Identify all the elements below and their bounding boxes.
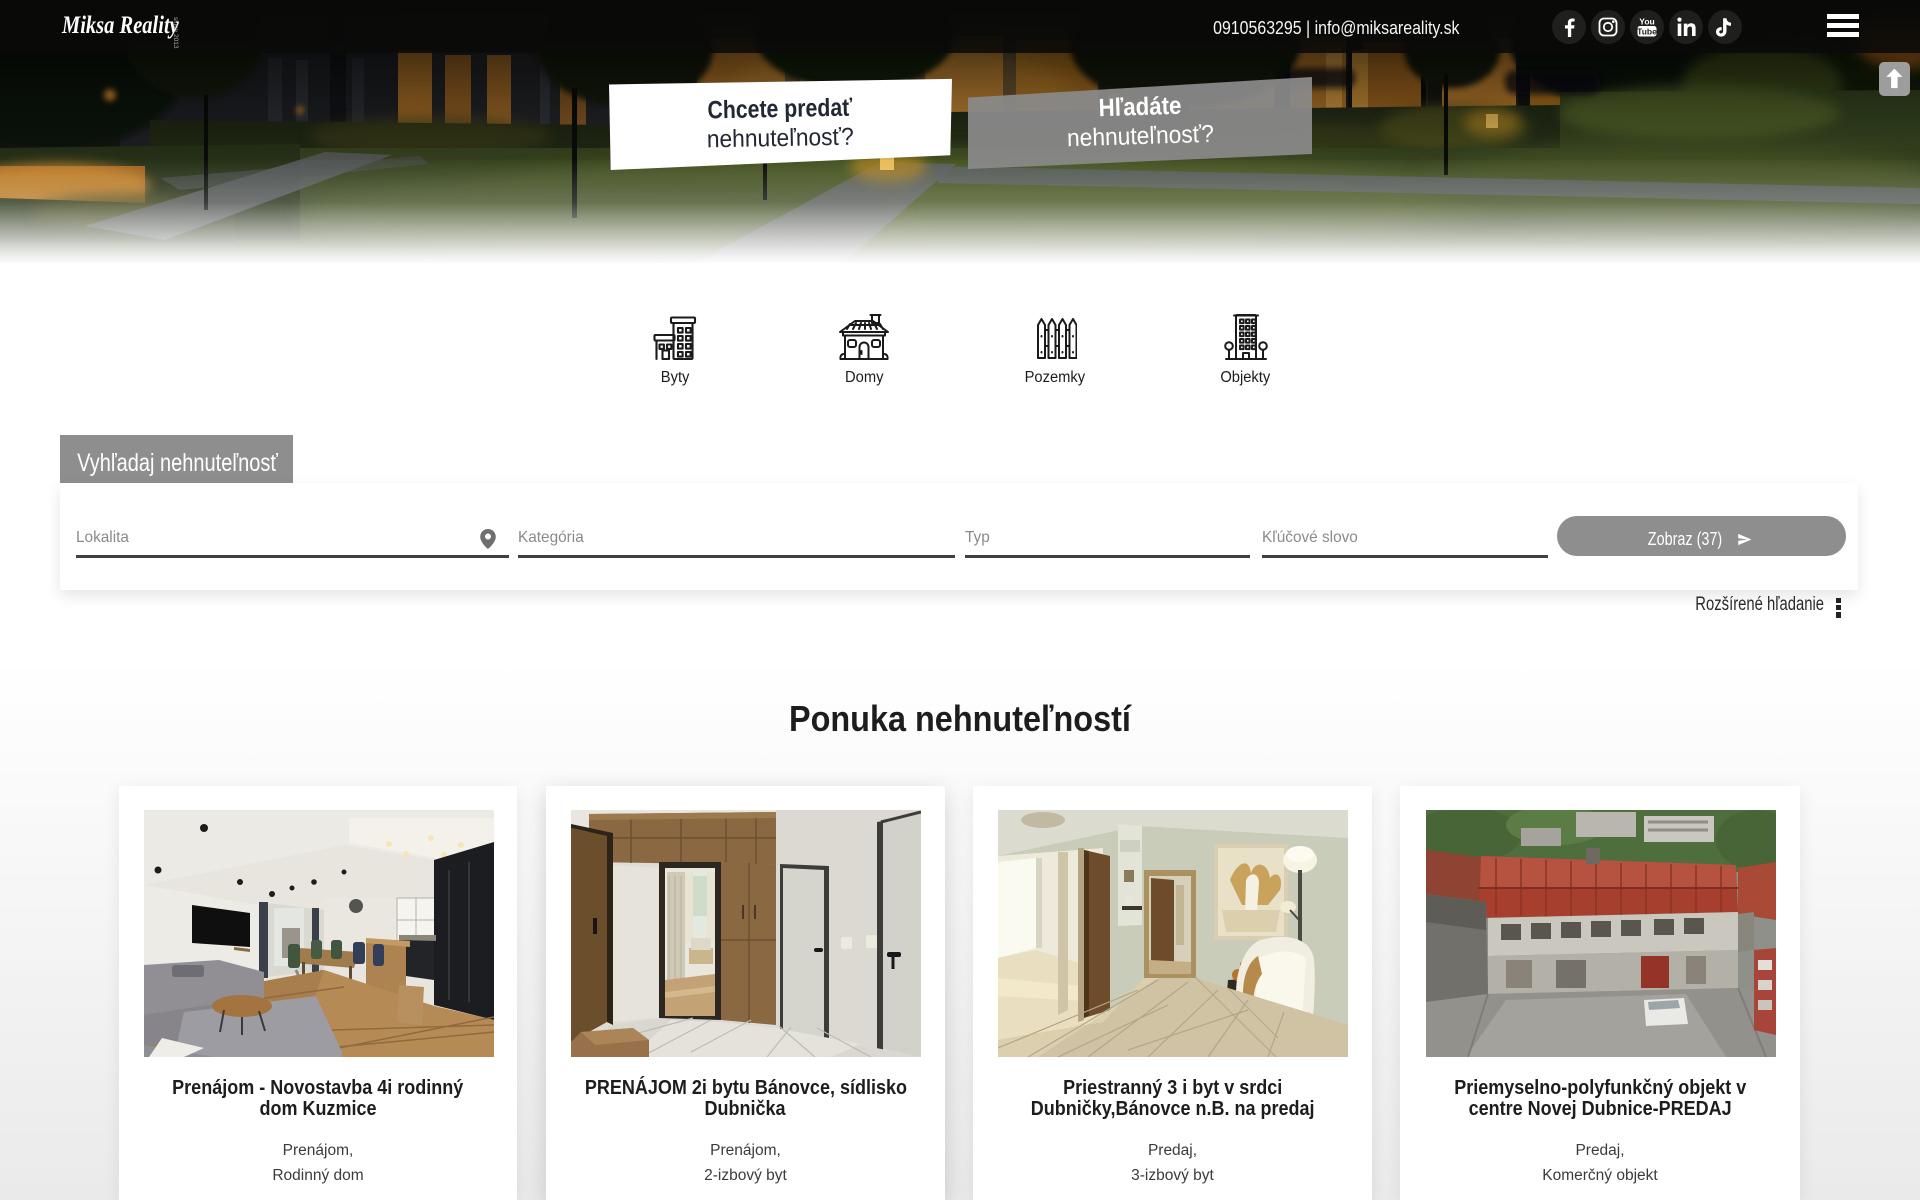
svg-text:You: You — [1639, 17, 1654, 27]
svg-text:Tube: Tube — [1637, 27, 1657, 37]
